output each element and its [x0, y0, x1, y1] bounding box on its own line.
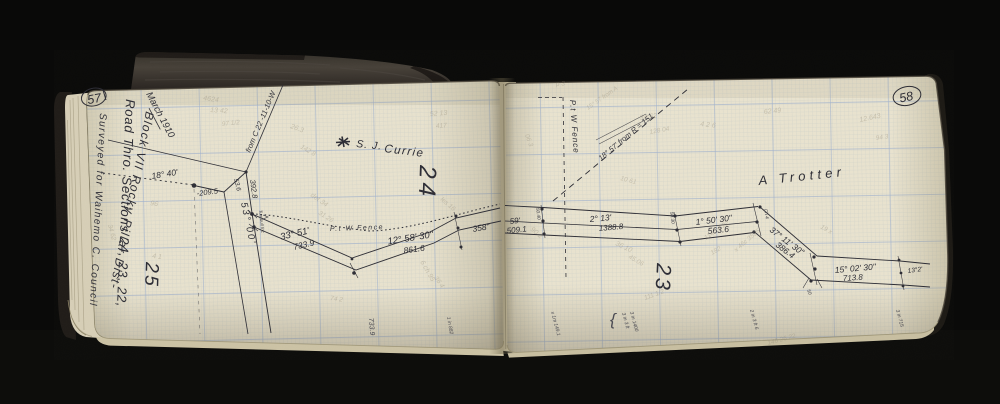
svg-text:417: 417 — [436, 122, 448, 130]
svg-text:24: 24 — [413, 164, 441, 201]
svg-text:733.9: 733.9 — [367, 318, 375, 336]
svg-text:13 42: 13 42 — [210, 107, 228, 115]
svg-text:58: 58 — [898, 89, 915, 106]
svg-text:p 3: p 3 — [555, 80, 566, 88]
svg-text:25: 25 — [140, 261, 162, 289]
svg-text:713.8: 713.8 — [843, 273, 864, 283]
svg-text:52 13: 52 13 — [430, 110, 448, 118]
svg-text:4 1: 4 1 — [152, 253, 163, 261]
svg-text:96: 96 — [150, 200, 159, 208]
